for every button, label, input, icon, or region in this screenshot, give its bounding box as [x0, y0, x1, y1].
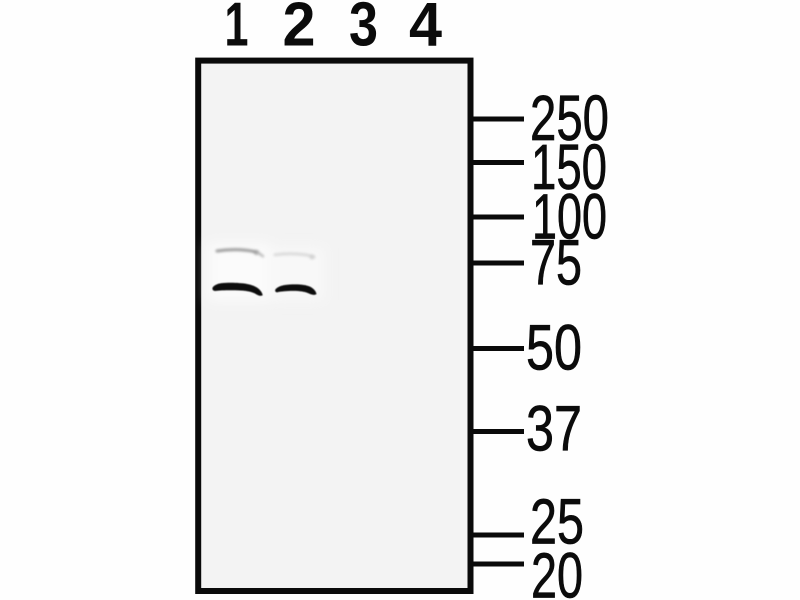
svg-text:3: 3	[349, 0, 378, 60]
svg-text:1: 1	[225, 0, 249, 60]
svg-text:20: 20	[531, 540, 583, 600]
svg-text:37: 37	[526, 393, 582, 465]
svg-text:4: 4	[409, 0, 442, 60]
svg-text:75: 75	[530, 227, 582, 299]
svg-text:2: 2	[283, 0, 316, 60]
svg-text:50: 50	[526, 312, 582, 384]
